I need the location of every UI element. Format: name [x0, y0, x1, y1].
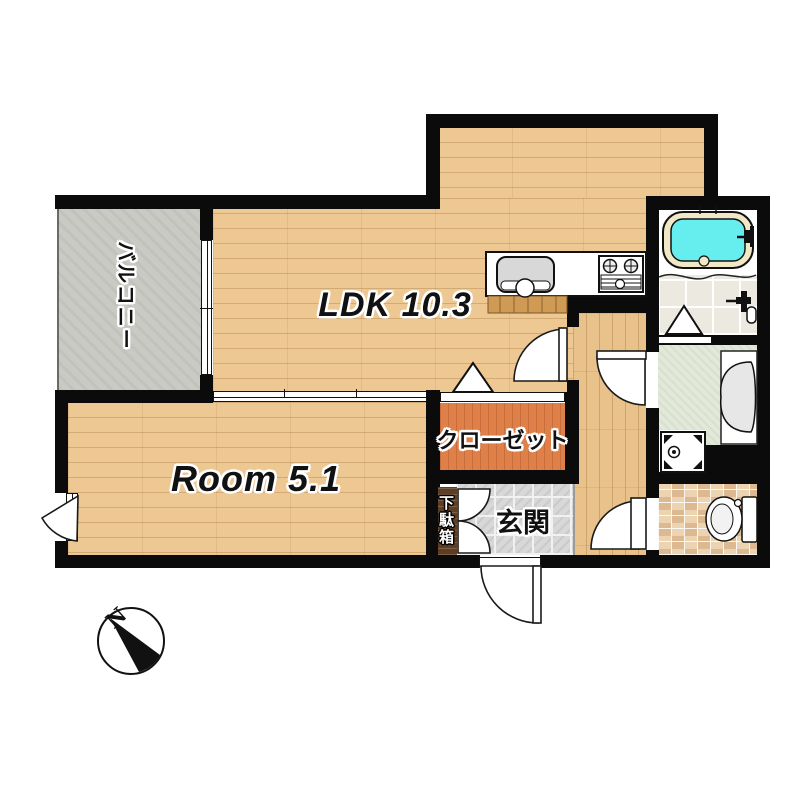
wall	[55, 390, 213, 403]
compass-needle	[110, 618, 160, 672]
wall	[55, 541, 68, 568]
closet-door-track	[440, 392, 565, 402]
ldk-upper-floor	[438, 127, 707, 198]
wall	[540, 555, 770, 568]
wall	[757, 196, 770, 568]
wall	[646, 408, 659, 498]
wall	[200, 209, 213, 240]
ldk-label: LDK 10.3	[305, 286, 485, 325]
compass-north-label: N	[101, 602, 132, 633]
partition-rail	[214, 397, 426, 398]
hallway-floor	[573, 313, 646, 555]
wall	[646, 210, 659, 352]
wall	[200, 375, 213, 391]
entrance-label: 玄関	[477, 501, 569, 540]
balcony-window	[201, 240, 212, 375]
wall	[705, 445, 757, 484]
washer-alcove	[658, 430, 706, 472]
entrance-door	[481, 566, 541, 623]
wall	[426, 470, 579, 484]
floor-plan: N LDK 10.3 Room 5.1 クローゼット 玄関 下駄箱 バルコニー	[0, 0, 800, 800]
sliding-partition	[213, 391, 427, 402]
wall	[55, 390, 68, 493]
shoe-cabinet-label: 下駄箱	[440, 495, 456, 546]
partition-tick	[356, 389, 357, 397]
partition-tick	[284, 389, 285, 397]
entrance-threshold	[479, 557, 541, 567]
bath-door-track	[658, 336, 712, 344]
wall	[55, 195, 438, 209]
closet-label: クローゼット	[436, 423, 569, 455]
wall	[55, 555, 480, 568]
wall	[426, 114, 440, 209]
compass: N	[98, 602, 164, 674]
wall	[426, 114, 718, 128]
wall	[646, 550, 659, 556]
balcony-label: バルコニー	[118, 237, 142, 355]
wall	[567, 295, 646, 313]
bedroom-label: Room 5.1	[166, 458, 346, 500]
wall	[567, 380, 579, 392]
wall	[646, 196, 770, 210]
wall	[567, 313, 579, 327]
bathroom-tile-floor	[658, 275, 757, 335]
toilet-floor	[658, 484, 757, 555]
window-tick	[200, 308, 213, 309]
bathroom-drying-area	[658, 210, 757, 275]
bedroom-window	[66, 493, 78, 541]
window-rail	[72, 494, 73, 540]
